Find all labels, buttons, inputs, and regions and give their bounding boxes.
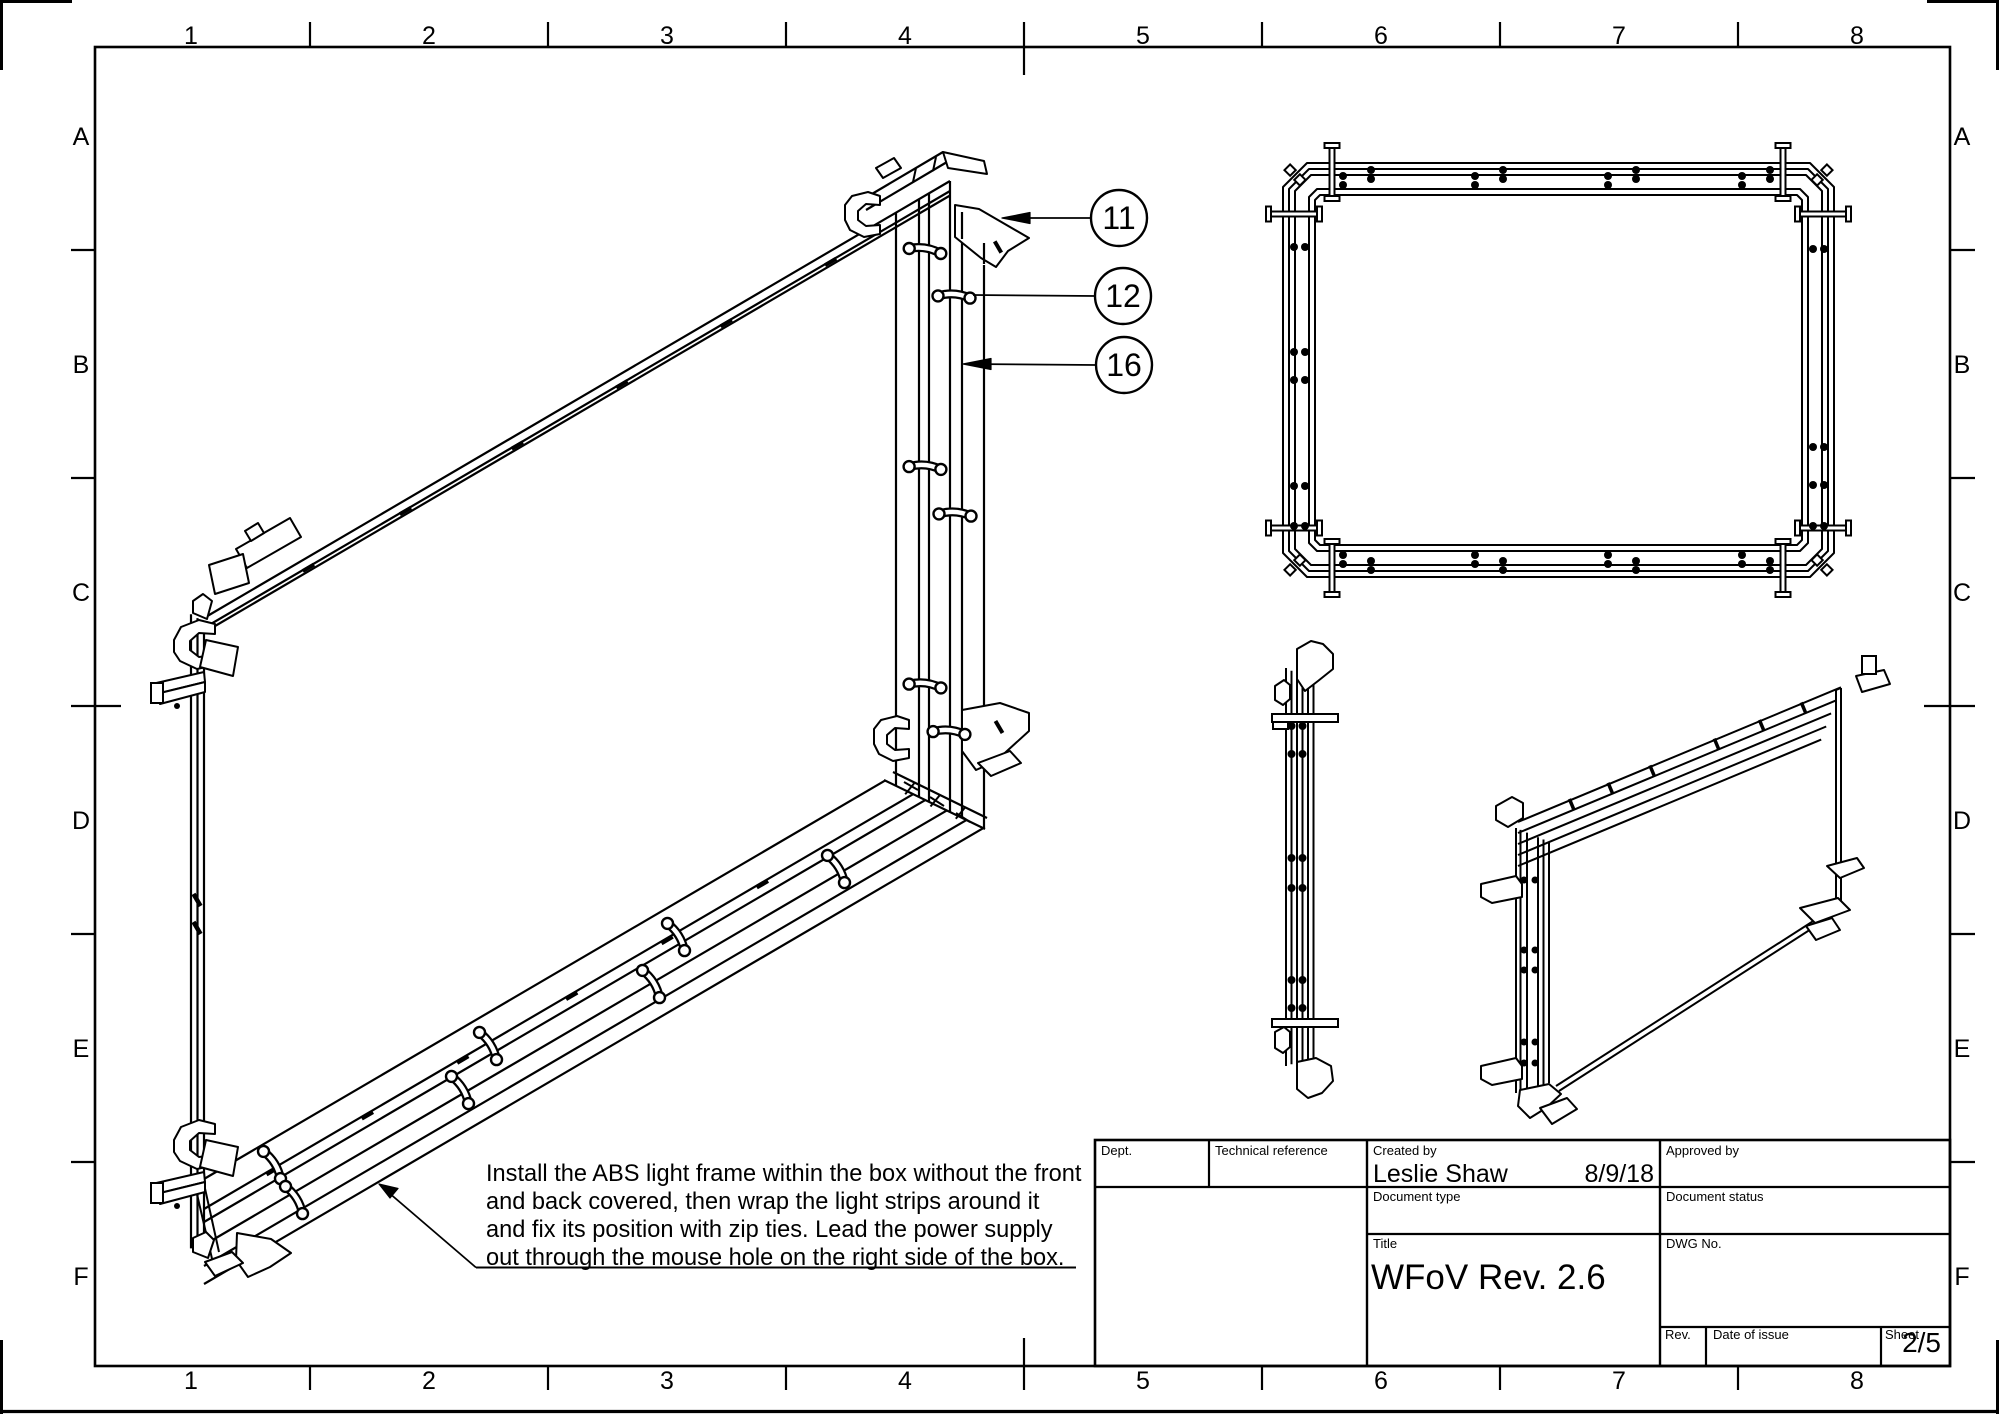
svg-text:Document type: Document type — [1373, 1189, 1460, 1204]
svg-text:Created by: Created by — [1373, 1143, 1437, 1158]
svg-text:Dept.: Dept. — [1101, 1143, 1132, 1158]
svg-text:Install the ABS light frame wi: Install the ABS light frame within the b… — [486, 1161, 1082, 1187]
svg-text:2: 2 — [422, 22, 436, 50]
svg-text:6: 6 — [1374, 1367, 1388, 1395]
svg-text:Approved by: Approved by — [1666, 1143, 1739, 1158]
svg-text:A: A — [73, 123, 90, 151]
svg-text:D: D — [72, 807, 90, 835]
svg-text:4: 4 — [898, 1367, 912, 1395]
svg-text:5: 5 — [1136, 22, 1150, 50]
svg-text:Leslie Shaw: Leslie Shaw — [1373, 1160, 1509, 1188]
svg-text:3: 3 — [660, 22, 674, 50]
svg-text:5: 5 — [1136, 1367, 1150, 1395]
svg-text:Date of issue: Date of issue — [1713, 1327, 1789, 1342]
svg-text:Technical reference: Technical reference — [1215, 1143, 1328, 1158]
svg-text:Rev.: Rev. — [1665, 1327, 1691, 1342]
svg-text:8/9/18: 8/9/18 — [1584, 1160, 1654, 1188]
svg-text:7: 7 — [1612, 22, 1626, 50]
svg-text:C: C — [1953, 579, 1971, 607]
svg-text:C: C — [72, 579, 90, 607]
svg-text:F: F — [73, 1263, 88, 1291]
svg-text:7: 7 — [1612, 1367, 1626, 1395]
svg-text:8: 8 — [1850, 1367, 1864, 1395]
svg-text:D: D — [1953, 807, 1971, 835]
svg-text:A: A — [1954, 123, 1971, 151]
svg-text:3: 3 — [660, 1367, 674, 1395]
svg-text:B: B — [73, 351, 90, 379]
svg-text:6: 6 — [1374, 22, 1388, 50]
svg-text:11: 11 — [1102, 200, 1135, 236]
svg-text:Document status: Document status — [1666, 1189, 1764, 1204]
svg-text:and fix its position with zip: and fix its position with zip ties. Lead… — [486, 1217, 1053, 1243]
svg-text:and back covered, then wrap th: and back covered, then wrap the light st… — [486, 1189, 1040, 1215]
svg-text:WFoV Rev. 2.6: WFoV Rev. 2.6 — [1371, 1258, 1606, 1297]
svg-text:2: 2 — [422, 1367, 436, 1395]
svg-text:1: 1 — [184, 1367, 198, 1395]
svg-text:2/5: 2/5 — [1902, 1327, 1941, 1358]
svg-text:1: 1 — [184, 22, 198, 50]
svg-text:Title: Title — [1373, 1236, 1397, 1251]
svg-text:F: F — [1954, 1263, 1969, 1291]
svg-text:4: 4 — [898, 22, 912, 50]
svg-text:E: E — [73, 1035, 90, 1063]
svg-text:B: B — [1954, 351, 1971, 379]
svg-text:DWG No.: DWG No. — [1666, 1236, 1722, 1251]
svg-text:8: 8 — [1850, 22, 1864, 50]
svg-text:12: 12 — [1105, 278, 1141, 314]
svg-text:16: 16 — [1106, 347, 1142, 383]
svg-text:E: E — [1954, 1035, 1971, 1063]
